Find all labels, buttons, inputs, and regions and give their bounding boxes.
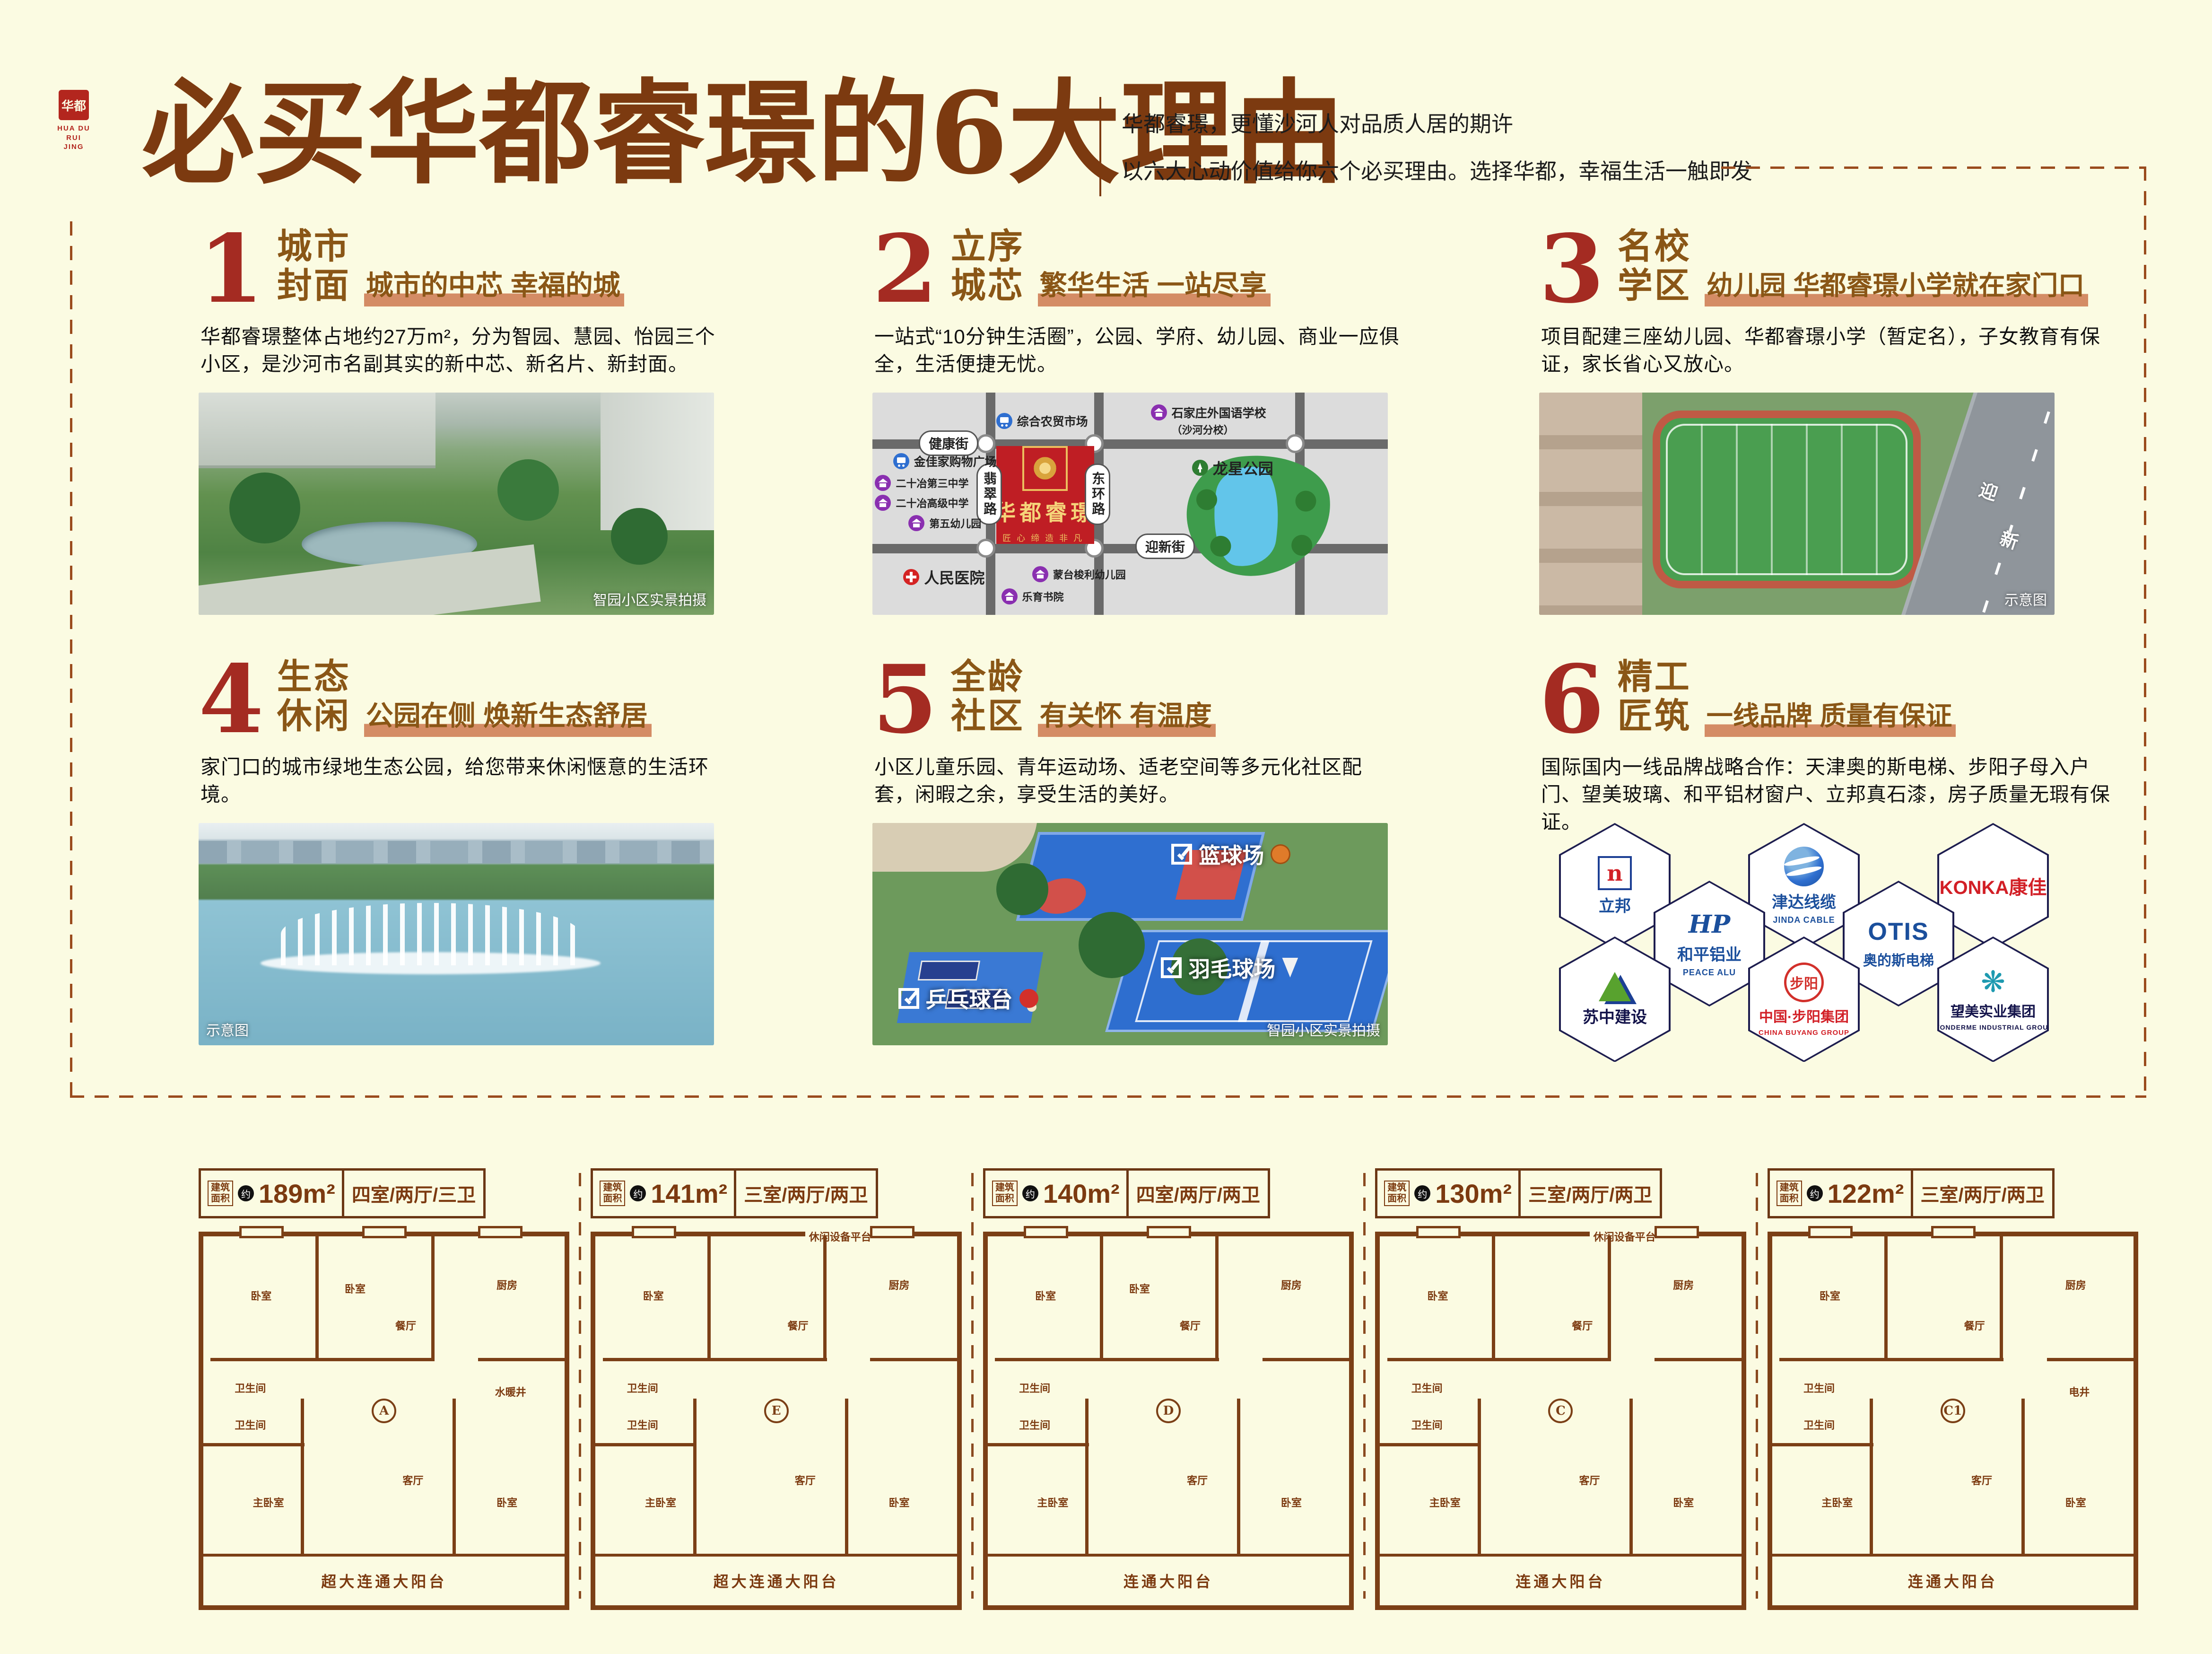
- reason-6-header: 6 精工 匠筑 一线品牌 质量有保证: [1539, 656, 2149, 738]
- building-right: [601, 393, 714, 530]
- balcony-label: 连通大阳台: [1908, 1570, 1998, 1592]
- brand-name: 立邦: [1599, 893, 1631, 916]
- poi-label: 二十冶第三中学: [896, 475, 968, 490]
- reason-4-body: 家门口的城市绿地生态公园，给您带来休闲惬意的生活环境。: [200, 753, 728, 808]
- room-label: 餐厅: [787, 1318, 808, 1333]
- poi-label: 人民医院: [924, 566, 984, 588]
- reason-4-header: 4 生态 休闲 公园在侧 焕新生态舒居: [199, 656, 733, 738]
- room-label: 卧室: [345, 1281, 366, 1296]
- room-label: 餐厅: [1572, 1318, 1593, 1333]
- fountain-mist: [261, 952, 601, 974]
- reason-1-title-line2: 封面: [277, 266, 351, 306]
- floorplan-141-drawing: 休闲设备平台 卧室 餐厅 厨房 卫生间 卫生间 主卧室 客厅 卧室 E 超大连通…: [591, 1232, 961, 1610]
- room-label: 主卧室: [1429, 1495, 1461, 1510]
- basketball-icon: [1271, 844, 1290, 864]
- room-label: 厨房: [496, 1277, 517, 1292]
- brand-logo-en-line1: HUA DU: [57, 124, 91, 133]
- room-label: 厨房: [2065, 1277, 2086, 1292]
- reason-6-number: 6: [1539, 661, 1604, 738]
- room-label: 客厅: [1971, 1472, 1992, 1488]
- poi-foreign-school: 石家庄外国语学校 （沙河分校）: [1151, 404, 1266, 437]
- reason-2-tagline: 繁华生活 一站尽享: [1038, 263, 1271, 306]
- approx-badge: 约: [630, 1185, 646, 1201]
- unit-letter: C: [1548, 1399, 1573, 1423]
- poi-label: 二十冶高级中学: [896, 495, 968, 510]
- reason-3-section: 3 名校 学区 幼儿园 华都睿璟小学就在家门口 项目配建三座幼儿园、华都睿璟小学…: [1539, 226, 2149, 654]
- area-prefix: 建筑面积: [600, 1181, 625, 1206]
- poi-hospital: 人民医院: [903, 566, 984, 588]
- room-label: 主卧室: [645, 1495, 676, 1510]
- tree: [497, 459, 559, 521]
- street-label-east: 东环路: [1085, 464, 1110, 525]
- floorplan-140-drawing: 卧室 卧室 餐厅 厨房 卫生间 卫生间 主卧室 客厅 卧室 D 连通大阳台: [983, 1232, 1354, 1610]
- room-label: 客厅: [402, 1472, 423, 1488]
- platform-label: 休闲设备平台: [805, 1229, 875, 1244]
- balcony: 连通大阳台: [1380, 1554, 1741, 1605]
- poi-high-school: 二十冶高级中学: [875, 495, 968, 511]
- floorplan-141-header: 建筑面积 约 141m² 三室/两厅/两卫: [591, 1168, 878, 1218]
- room-label: 卧室: [251, 1288, 271, 1303]
- intersection: [1286, 434, 1305, 453]
- room-label: 厨房: [1281, 1277, 1302, 1292]
- reason-6-section: 6 精工 匠筑 一线品牌 质量有保证 国际国内一线品牌战略合作：天津奥的斯电梯、…: [1539, 656, 2149, 1085]
- brand-name-en: CHINA BUYANG GROUP: [1759, 1029, 1849, 1037]
- snowflake-icon: ❋: [1981, 968, 2005, 997]
- sport-name: 羽毛球场: [1188, 952, 1275, 983]
- reason-4-title: 生态 休闲: [277, 656, 351, 736]
- balcony: 超大连通大阳台: [203, 1554, 565, 1605]
- city-skyline: [199, 841, 714, 863]
- room-label: 餐厅: [395, 1318, 416, 1333]
- reason-2-title-line2: 城芯: [951, 266, 1025, 306]
- room-label: 卫生间: [1803, 1417, 1835, 1432]
- poi-label: 第五幼儿园: [929, 516, 981, 531]
- window: [362, 1226, 407, 1238]
- intersection: [976, 434, 995, 453]
- room-label: 厨房: [1673, 1277, 1694, 1292]
- reason-1-photo: 智园小区实景拍摄: [199, 393, 714, 615]
- unit-letter: C1: [1941, 1399, 1965, 1423]
- area-value: 130m²: [1435, 1178, 1512, 1209]
- street: [1898, 393, 2055, 615]
- area-prefix: 建筑面积: [208, 1181, 233, 1206]
- ping-pong-table: [918, 961, 980, 980]
- photo-caption: 智园小区实景拍摄: [1267, 1019, 1380, 1040]
- project-name: 华都睿璟: [994, 496, 1096, 527]
- reason-4-photo: 示意图: [199, 823, 714, 1045]
- reason-3-title-line1: 名校: [1618, 227, 1691, 266]
- balcony-label: 超大连通大阳台: [714, 1570, 839, 1592]
- brand-logo: 华都 HUA DU RUI JING: [57, 90, 91, 152]
- reason-5-section: 5 全龄 社区 有关怀 有温度 小区儿童乐园、青年运动场、适老空间等多元化社区配…: [872, 656, 1407, 1085]
- reason-2-body: 一站式“10分钟生活圈”，公园、学府、幼儿园、商业一应俱全，生活便捷无忧。: [874, 323, 1402, 378]
- sports-field: [1653, 411, 1921, 588]
- checkbox-icon: [898, 988, 919, 1009]
- brand-name-cn: 奥的斯电梯: [1863, 949, 1934, 970]
- approx-badge: 约: [1807, 1185, 1823, 1201]
- project-slogan: 匠心缔造非凡: [1002, 532, 1088, 544]
- room-label: 电井: [2069, 1384, 2090, 1399]
- suzhong-mark-icon: [1599, 972, 1631, 1001]
- balcony-label: 连通大阳台: [1123, 1570, 1213, 1592]
- reason-1-number: 1: [199, 231, 264, 307]
- reason-2-title-line1: 立序: [951, 227, 1025, 266]
- room-label: 卧室: [496, 1495, 517, 1510]
- park-tree: [1294, 490, 1317, 512]
- layout-value: 三室/两厅/两卫: [1521, 1171, 1660, 1216]
- shuttlecock-icon: [1282, 958, 1298, 978]
- area-prefix: 建筑面积: [1384, 1181, 1410, 1206]
- room-label: 卧室: [1673, 1495, 1694, 1510]
- brand-name: 津达线缆: [1772, 889, 1836, 912]
- project-block: 华都睿璟 匠心缔造非凡: [996, 446, 1094, 544]
- paddle-icon: [1019, 989, 1038, 1008]
- reason-1-body: 华都睿璟整体占地约27万m²，分为智园、慧园、怡园三个小区，是沙河市名副其实的新…: [200, 323, 728, 378]
- floorplan-189-drawing: 卧室 卧室 餐厅 厨房 卫生间 卫生间 主卧室 客厅 卧室 水暖井 A 超大连通…: [199, 1232, 569, 1610]
- reason-5-title: 全龄 社区: [951, 656, 1025, 736]
- cart-icon: [893, 453, 909, 469]
- reason-5-title-line1: 全龄: [951, 657, 1025, 697]
- poi-kindergarten-5: 第五幼儿园: [908, 515, 981, 531]
- buyang-emblem-icon: 步阳: [1784, 963, 1824, 1002]
- approx-badge: 约: [1414, 1185, 1430, 1201]
- project-emblem-icon: [1022, 446, 1068, 491]
- window: [1416, 1226, 1461, 1238]
- room-label: 卫生间: [235, 1417, 266, 1432]
- layout-value: 三室/两厅/两卫: [736, 1171, 875, 1216]
- approx-badge: 约: [238, 1185, 254, 1201]
- room-label: 卧室: [2065, 1495, 2086, 1510]
- reason-1-section: 1 城市 封面 城市的中芯 幸福的城 华都睿璟整体占地约27万m²，分为智园、慧…: [199, 226, 733, 654]
- tree: [996, 863, 1048, 915]
- photo-caption: 智园小区实景拍摄: [593, 588, 706, 609]
- brand-name: KONKA康佳: [1940, 872, 2047, 900]
- brand-name: 中国·步阳集团: [1759, 1005, 1849, 1026]
- poster-page: { "logo": { "seal": "华都", "en_line1": "H…: [0, 0, 2212, 1654]
- poi-market: 综合农贸市场: [996, 412, 1088, 429]
- room-label: 客厅: [1187, 1472, 1208, 1488]
- floorplan-122: 建筑面积 约 122m² 三室/两厅/两卫 卧室 餐厅 厨房 卫生间 卫生间 主…: [1758, 1168, 2148, 1632]
- balcony: 超大连通大阳台: [595, 1554, 957, 1605]
- room-label: 卫生间: [627, 1417, 658, 1432]
- room-label: 餐厅: [1964, 1318, 1985, 1333]
- floorplan-141: 建筑面积 约 141m² 三室/两厅/两卫 休闲设备平台 卧室 餐厅 厨房 卫生…: [581, 1168, 971, 1632]
- room-label: 厨房: [888, 1277, 909, 1292]
- reason-5-number: 5: [872, 661, 938, 738]
- nippon-n-icon: n: [1598, 856, 1632, 890]
- reason-5-title-line2: 社区: [951, 697, 1025, 736]
- dashed-frame-left: [70, 221, 72, 1095]
- balcony: 连通大阳台: [988, 1554, 1349, 1605]
- window: [1024, 1226, 1068, 1238]
- reason-1-header: 1 城市 封面 城市的中芯 幸福的城: [199, 226, 733, 307]
- balcony: 连通大阳台: [1772, 1554, 2134, 1605]
- reason-1-title: 城市 封面: [277, 226, 351, 306]
- poi-montessori: 蒙台梭利幼儿园: [1032, 566, 1126, 582]
- photo-caption: 示意图: [2004, 588, 2047, 609]
- balcony-label: 超大连通大阳台: [321, 1570, 447, 1592]
- room-label: 卧室: [1281, 1495, 1302, 1510]
- room-label: 主卧室: [253, 1495, 284, 1510]
- room-label: 卫生间: [1019, 1380, 1050, 1395]
- room-label: 卧室: [643, 1288, 664, 1303]
- window: [870, 1226, 914, 1238]
- reason-5-body: 小区儿童乐园、青年运动场、适老空间等多元化社区配套，闲暇之余，享受生活的美好。: [874, 753, 1402, 808]
- area-prefix: 建筑面积: [1777, 1181, 1802, 1206]
- tree: [611, 508, 668, 565]
- brand-name: OTIS: [1868, 918, 1929, 946]
- window: [632, 1226, 676, 1238]
- reason-2-section: 2 立序 城芯 繁华生活 一站尽享 一站式“10分钟生活圈”，公园、学府、幼儿园…: [872, 226, 1407, 654]
- layout-value: 三室/两厅/两卫: [1913, 1171, 2052, 1216]
- label-pingpong: 乒乓球台: [898, 983, 1038, 1014]
- area-value: 140m²: [1043, 1178, 1120, 1209]
- brand-logo-en: HUA DU RUI JING: [57, 124, 91, 152]
- area-value: 122m²: [1828, 1178, 1904, 1209]
- room-label: 卧室: [888, 1495, 909, 1510]
- area-prefix: 建筑面积: [992, 1181, 1018, 1206]
- room-label: 卧室: [1129, 1281, 1150, 1296]
- reason-3-number: 3: [1539, 231, 1604, 307]
- room-label: 卫生间: [1411, 1380, 1443, 1395]
- floorplan-130-header: 建筑面积 约 130m² 三室/两厅/两卫: [1375, 1168, 1662, 1218]
- layout-value: 四室/两厅/三卫: [344, 1171, 483, 1216]
- poi-label: 乐育书院: [1022, 589, 1064, 604]
- poi-longxing-park: 龙星公园: [1192, 457, 1273, 479]
- floorplan-row: 建筑面积 约 189m² 四室/两厅/三卫 卧室 卧室 餐厅 厨房 卫生间 卫生…: [189, 1168, 2148, 1632]
- poi-label: 金佳家购物广场: [914, 453, 997, 470]
- reason-3-tagline: 幼儿园 华都睿璟小学就在家门口: [1705, 264, 2089, 306]
- reason-3-header: 3 名校 学区 幼儿园 华都睿璟小学就在家门口: [1539, 226, 2149, 307]
- street-label-north: 健康街: [919, 430, 978, 456]
- checkbox-icon: [1171, 844, 1192, 865]
- room-label: 卧室: [1035, 1288, 1056, 1303]
- window: [239, 1226, 284, 1238]
- floorplan-189-header: 建筑面积 约 189m² 四室/两厅/三卫: [199, 1168, 486, 1218]
- platform-label: 休闲设备平台: [1590, 1229, 1660, 1244]
- school-icon: [1032, 566, 1048, 582]
- floorplan-140: 建筑面积 约 140m² 四室/两厅/两卫 卧室 卧室 餐厅 厨房 卫生间 卫生…: [974, 1168, 1363, 1632]
- window: [1147, 1226, 1191, 1238]
- floorplan-189: 建筑面积 约 189m² 四室/两厅/三卫 卧室 卧室 餐厅 厨房 卫生间 卫生…: [189, 1168, 579, 1632]
- reason-5-header: 5 全龄 社区 有关怀 有温度: [872, 656, 1407, 738]
- layout-value: 四室/两厅/两卫: [1129, 1171, 1268, 1216]
- school-icon: [875, 495, 891, 511]
- reason-4-title-line2: 休闲: [277, 697, 351, 736]
- brand-name: 苏中建设: [1583, 1004, 1647, 1027]
- floorplan-140-header: 建筑面积 约 140m² 四室/两厅/两卫: [983, 1168, 1270, 1218]
- location-map: 健康街 迎新街 翡翠路 东环路 华都睿璟 匠心缔造非凡 综合农贸市场 石家庄外国…: [872, 393, 1388, 615]
- hp-monogram-icon: HP: [1689, 910, 1730, 939]
- intersection: [976, 539, 995, 558]
- street-centerline: [1967, 393, 2055, 615]
- unit-letter: A: [372, 1399, 396, 1423]
- reason-2-header: 2 立序 城芯 繁华生活 一站尽享: [872, 226, 1407, 307]
- hospital-cross-icon: [903, 569, 919, 585]
- reason-4-number: 4: [199, 661, 264, 738]
- reason-5-tagline: 有关怀 有温度: [1038, 693, 1216, 737]
- room-label: 主卧室: [1037, 1495, 1068, 1510]
- room-label: 卫生间: [1803, 1380, 1835, 1395]
- poi-label: 石家庄外国语学校: [1172, 404, 1266, 421]
- subtitle-line1: 华都睿璟，更懂沙河人对品质人居的期许: [1122, 107, 1513, 138]
- checkbox-icon: [1161, 957, 1182, 978]
- school-buildings: [1539, 393, 1642, 615]
- room-label: 卧室: [1820, 1288, 1840, 1303]
- reason-6-title-line1: 精工: [1618, 657, 1691, 697]
- brand-logo-en-line2: RUI JING: [57, 133, 91, 152]
- reason-2-number: 2: [872, 231, 938, 307]
- brand-name-en: WONDERME INDUSTRIAL GROUP: [1933, 1024, 2053, 1031]
- reason-3-body: 项目配建三座幼儿园、华都睿璟小学（暂定名），子女教育有保证，家长省心又放心。: [1541, 323, 2123, 378]
- school-icon: [908, 515, 924, 531]
- window: [1931, 1226, 1976, 1238]
- area-value: 141m²: [651, 1178, 727, 1209]
- cart-icon: [996, 413, 1012, 429]
- room-label: 主卧室: [1821, 1495, 1853, 1510]
- balcony-label: 连通大阳台: [1515, 1570, 1605, 1592]
- floorplan-130: 建筑面积 约 130m² 三室/两厅/两卫 休闲设备平台 卧室 餐厅 厨房 卫生…: [1366, 1168, 1755, 1632]
- brand-name-en: PEACE ALU: [1683, 968, 1736, 978]
- poi-label-line2: （沙河分校）: [1151, 422, 1234, 437]
- reason-4-section: 4 生态 休闲 公园在侧 焕新生态舒居 家门口的城市绿地生态公园，给您带来休闲惬…: [199, 656, 733, 1085]
- unit-letter: D: [1156, 1399, 1181, 1423]
- street-label-south: 迎新街: [1135, 534, 1195, 559]
- room-label: 餐厅: [1180, 1318, 1201, 1333]
- area-value: 189m²: [259, 1178, 335, 1209]
- dashed-frame-bottom: [70, 1095, 2146, 1098]
- label-badminton: 羽毛球场: [1161, 952, 1298, 983]
- reason-6-tagline: 一线品牌 质量有保证: [1705, 695, 1956, 737]
- unit-letter: E: [764, 1399, 789, 1423]
- window: [1655, 1226, 1699, 1238]
- poi-label: 蒙台梭利幼儿园: [1053, 567, 1126, 582]
- reason-2-title: 立序 城芯: [951, 226, 1025, 306]
- reason-3-photo: 迎 新 示意图: [1539, 393, 2055, 615]
- reason-3-title-line2: 学区: [1618, 266, 1691, 306]
- room-label: 卫生间: [1411, 1417, 1443, 1432]
- room-label: 客厅: [1579, 1472, 1600, 1488]
- brand-seal-icon: 华都: [59, 90, 89, 120]
- dashed-frame-top: [1721, 166, 2146, 169]
- title-divider: [1099, 97, 1101, 196]
- school-icon: [1001, 588, 1018, 604]
- tree-icon: [1192, 460, 1208, 476]
- room-label: 水暖井: [495, 1384, 526, 1399]
- poi-middle-school-3: 二十冶第三中学: [875, 475, 968, 491]
- brand-name: 和平铝业: [1677, 942, 1742, 965]
- room-label: 卫生间: [1019, 1417, 1050, 1432]
- room-label: 客厅: [795, 1472, 816, 1488]
- brand-name-en: JINDA CABLE: [1773, 915, 1835, 925]
- poi-label: 综合农贸市场: [1017, 412, 1088, 429]
- room-label: 卫生间: [235, 1380, 266, 1395]
- reason-6-title: 精工 匠筑: [1618, 656, 1691, 736]
- brand-logo-grid: n 立邦 津达线缆 JINDA CABLE KONKA康佳 HP 和平铝业 PE…: [1539, 823, 2055, 1062]
- reason-1-tagline: 城市的中芯 幸福的城: [364, 263, 624, 306]
- buildings-left: [199, 393, 435, 468]
- sport-name: 篮球场: [1199, 839, 1264, 870]
- reason-4-title-line1: 生态: [277, 657, 351, 697]
- school-icon: [875, 475, 891, 491]
- reason-5-photo: 篮球场 羽毛球场 乒乓球台 智园小区实景拍摄: [872, 823, 1388, 1045]
- school-icon: [1151, 404, 1167, 420]
- room-label: 卫生间: [627, 1380, 658, 1395]
- sport-name: 乒乓球台: [926, 983, 1013, 1014]
- label-basketball: 篮球场: [1171, 839, 1290, 870]
- window: [1808, 1226, 1853, 1238]
- floorplan-130-drawing: 休闲设备平台 卧室 餐厅 厨房 卫生间 卫生间 主卧室 客厅 卧室 C 连通大阳…: [1375, 1232, 1746, 1610]
- subtitle-line2: 以六大心动价值给你六个必买理由。选择华都，幸福生活一触即发: [1122, 154, 1752, 185]
- poi-shopping: 金佳家购物广场: [893, 453, 997, 470]
- tree: [1079, 912, 1145, 978]
- reason-1-title-line1: 城市: [277, 227, 351, 266]
- window: [478, 1226, 523, 1238]
- globe-icon: [1784, 847, 1824, 886]
- floorplan-122-header: 建筑面积 约 122m² 三室/两厅/两卫: [1768, 1168, 2055, 1218]
- photo-caption: 示意图: [206, 1019, 249, 1040]
- reason-3-title: 名校 学区: [1618, 226, 1691, 306]
- floorplan-122-drawing: 卧室 餐厅 厨房 卫生间 卫生间 主卧室 客厅 卧室 电井 C1 连通大阳台: [1768, 1232, 2138, 1610]
- reason-6-title-line2: 匠筑: [1618, 697, 1691, 736]
- approx-badge: 约: [1022, 1185, 1038, 1201]
- brand-name: 望美实业集团: [1951, 1000, 2036, 1021]
- poi-academy: 乐育书院: [1001, 588, 1064, 604]
- field-lines: [1666, 424, 1907, 575]
- reason-4-tagline: 公园在侧 焕新生态舒居: [364, 693, 652, 737]
- poi-label: 龙星公园: [1213, 457, 1273, 479]
- tree: [229, 473, 300, 543]
- room-label: 卧室: [1428, 1288, 1448, 1303]
